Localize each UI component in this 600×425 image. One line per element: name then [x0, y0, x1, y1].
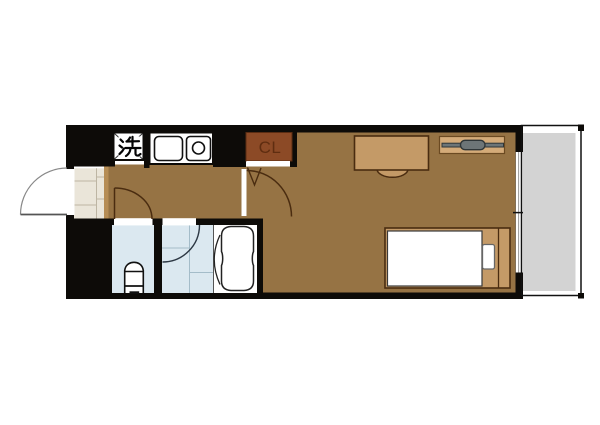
svg-text:CL: CL: [259, 138, 282, 157]
